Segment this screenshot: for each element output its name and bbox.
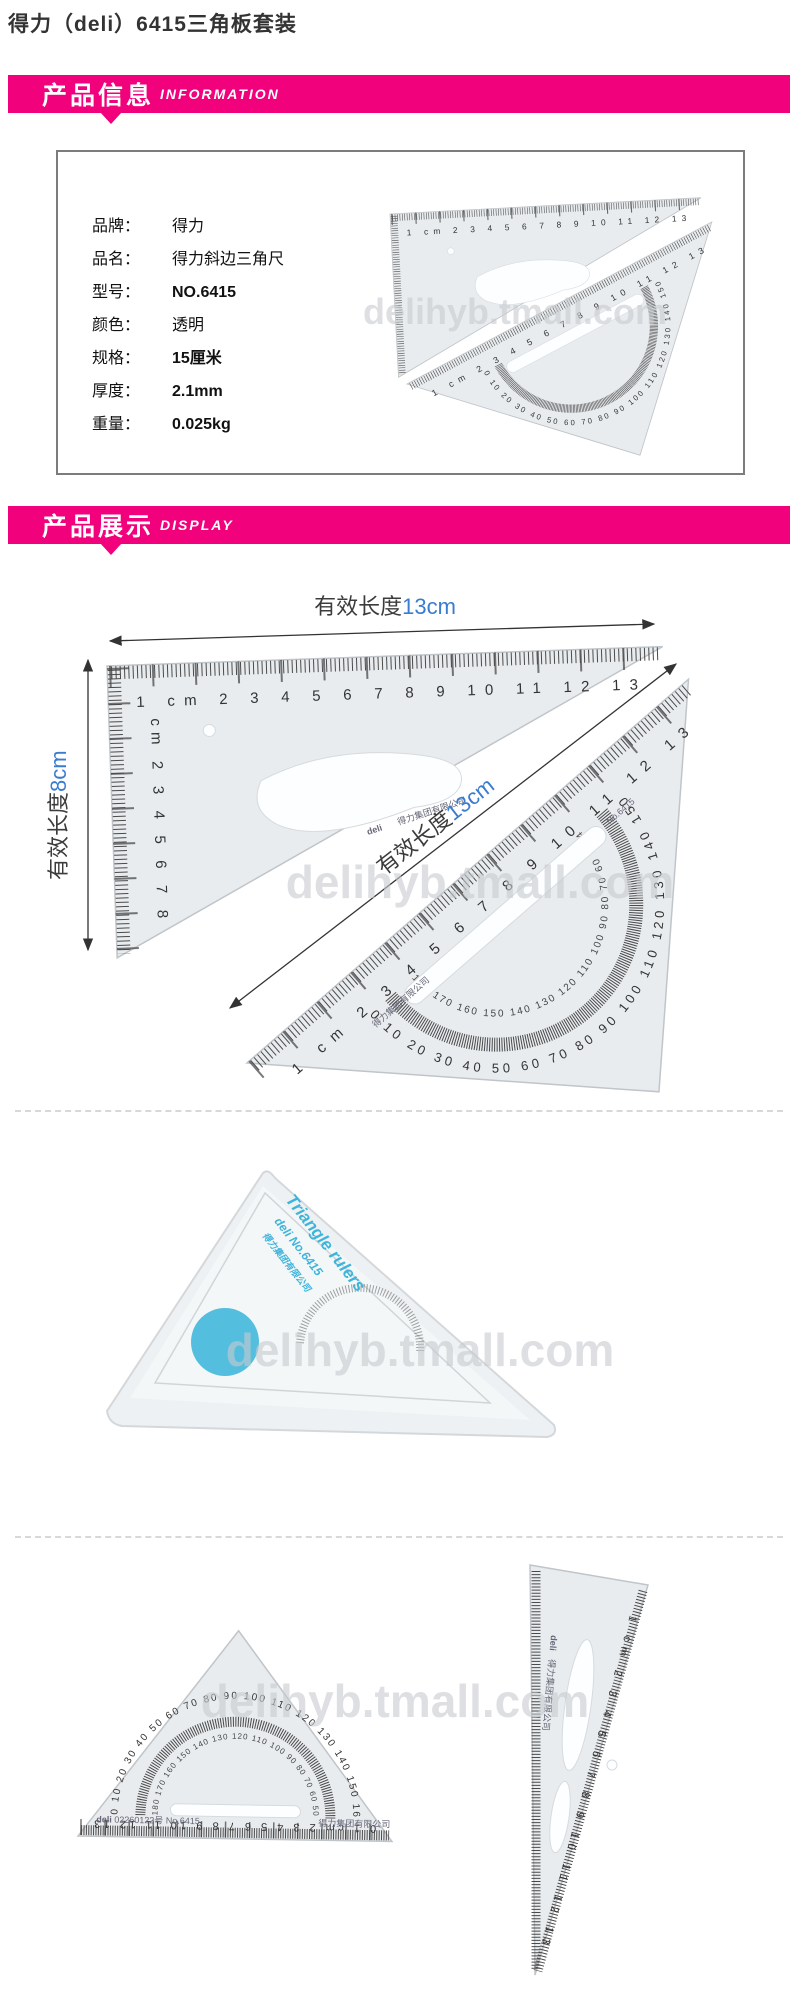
product-page: 得力（deli）6415三角板套装 产品信息 INFORMATION 品牌： 得… bbox=[0, 0, 798, 1989]
spec-label: 品名： bbox=[92, 245, 172, 269]
svg-text:deli: deli bbox=[548, 1635, 559, 1651]
watermark: delihyb.tmall.com bbox=[226, 1324, 615, 1376]
dashed-divider bbox=[15, 1110, 783, 1112]
spec-list: 品牌： 得力 品名： 得力斜边三角尺 型号： NO.6415 颜色： 透明 规格… bbox=[92, 212, 284, 443]
product-photo-package: Triangle rulers deli No.6415 得力集团有限公司 de… bbox=[60, 1148, 760, 1493]
spec-value: NO.6415 bbox=[172, 284, 236, 302]
svg-text:02260122号 No.6415: 02260122号 No.6415 bbox=[114, 1815, 200, 1826]
svg-text:deli: deli bbox=[96, 1814, 112, 1824]
svg-text:得力集团有限公司: 得力集团有限公司 bbox=[318, 1817, 390, 1829]
svg-text:有效长度13cm: 有效长度13cm bbox=[314, 594, 456, 619]
product-photo-pair: 0 1 cm 2 3 4 5 6 7 8 9 10 11 12 13 0 10 … bbox=[0, 1545, 798, 1989]
ruler-45-protractor: 0 1 cm 2 3 4 5 6 7 8 9 10 11 12 13 0 10 … bbox=[74, 1628, 395, 1845]
spec-label: 厚度： bbox=[92, 377, 172, 401]
banner-display-title: 产品展示 bbox=[42, 507, 154, 543]
watermark: delihyb.tmall.com bbox=[201, 1675, 590, 1727]
product-info-panel: 品牌： 得力 品名： 得力斜边三角尺 型号： NO.6415 颜色： 透明 规格… bbox=[56, 150, 745, 475]
spec-value: 15厘米 bbox=[172, 344, 222, 368]
svg-text:有效长度8cm: 有效长度8cm bbox=[46, 750, 71, 880]
spec-row: 品牌： 得力 bbox=[92, 212, 284, 245]
spec-label: 规格： bbox=[92, 344, 172, 368]
banner-tail-icon bbox=[100, 112, 122, 124]
svg-text:deli: deli bbox=[366, 823, 384, 837]
product-display-figure: 1 cm 2 3 4 5 6 7 8 9 10 11 12 13 cm 2 3 … bbox=[0, 550, 798, 1110]
dimension-top: 有效长度13cm bbox=[110, 594, 654, 641]
spec-label: 颜色： bbox=[92, 311, 172, 335]
spec-row: 规格： 15厘米 bbox=[92, 344, 284, 377]
banner-info-subtitle: INFORMATION bbox=[160, 86, 280, 102]
spec-row: 品名： 得力斜边三角尺 bbox=[92, 245, 284, 278]
spec-value: 得力 bbox=[172, 212, 204, 236]
spec-label: 品牌： bbox=[92, 212, 172, 236]
product-photo-info: 1 cm 2 3 4 5 6 7 8 9 10 11 12 13 1 cm 2 … bbox=[287, 152, 743, 473]
spec-label: 重量： bbox=[92, 410, 172, 434]
spec-label: 型号： bbox=[92, 278, 172, 302]
spec-value: 得力斜边三角尺 bbox=[172, 245, 284, 269]
dashed-divider bbox=[15, 1536, 783, 1538]
watermark: delihyb.tmall.com bbox=[286, 856, 675, 908]
banner-display-subtitle: DISPLAY bbox=[160, 517, 234, 533]
spec-value: 0.025kg bbox=[172, 416, 231, 434]
spec-row: 颜色： 透明 bbox=[92, 311, 284, 344]
spec-value: 透明 bbox=[172, 311, 204, 335]
page-title: 得力（deli）6415三角板套装 bbox=[8, 8, 297, 38]
section-banner-display: 产品展示 DISPLAY bbox=[8, 506, 790, 544]
dimension-left: 有效长度8cm bbox=[46, 660, 88, 950]
banner-info-title: 产品信息 bbox=[42, 76, 154, 112]
ruler-3060: 1 cm 2 3 4 5 6 7 8 9 10 11 12 13 deli 得力… bbox=[530, 1565, 648, 1975]
spec-value: 2.1mm bbox=[172, 383, 223, 401]
spec-row: 重量： 0.025kg bbox=[92, 410, 284, 443]
section-banner-info: 产品信息 INFORMATION bbox=[8, 75, 790, 113]
spec-row: 型号： NO.6415 bbox=[92, 278, 284, 311]
watermark: delihyb.tmall.com bbox=[363, 291, 667, 332]
spec-row: 厚度： 2.1mm bbox=[92, 377, 284, 410]
